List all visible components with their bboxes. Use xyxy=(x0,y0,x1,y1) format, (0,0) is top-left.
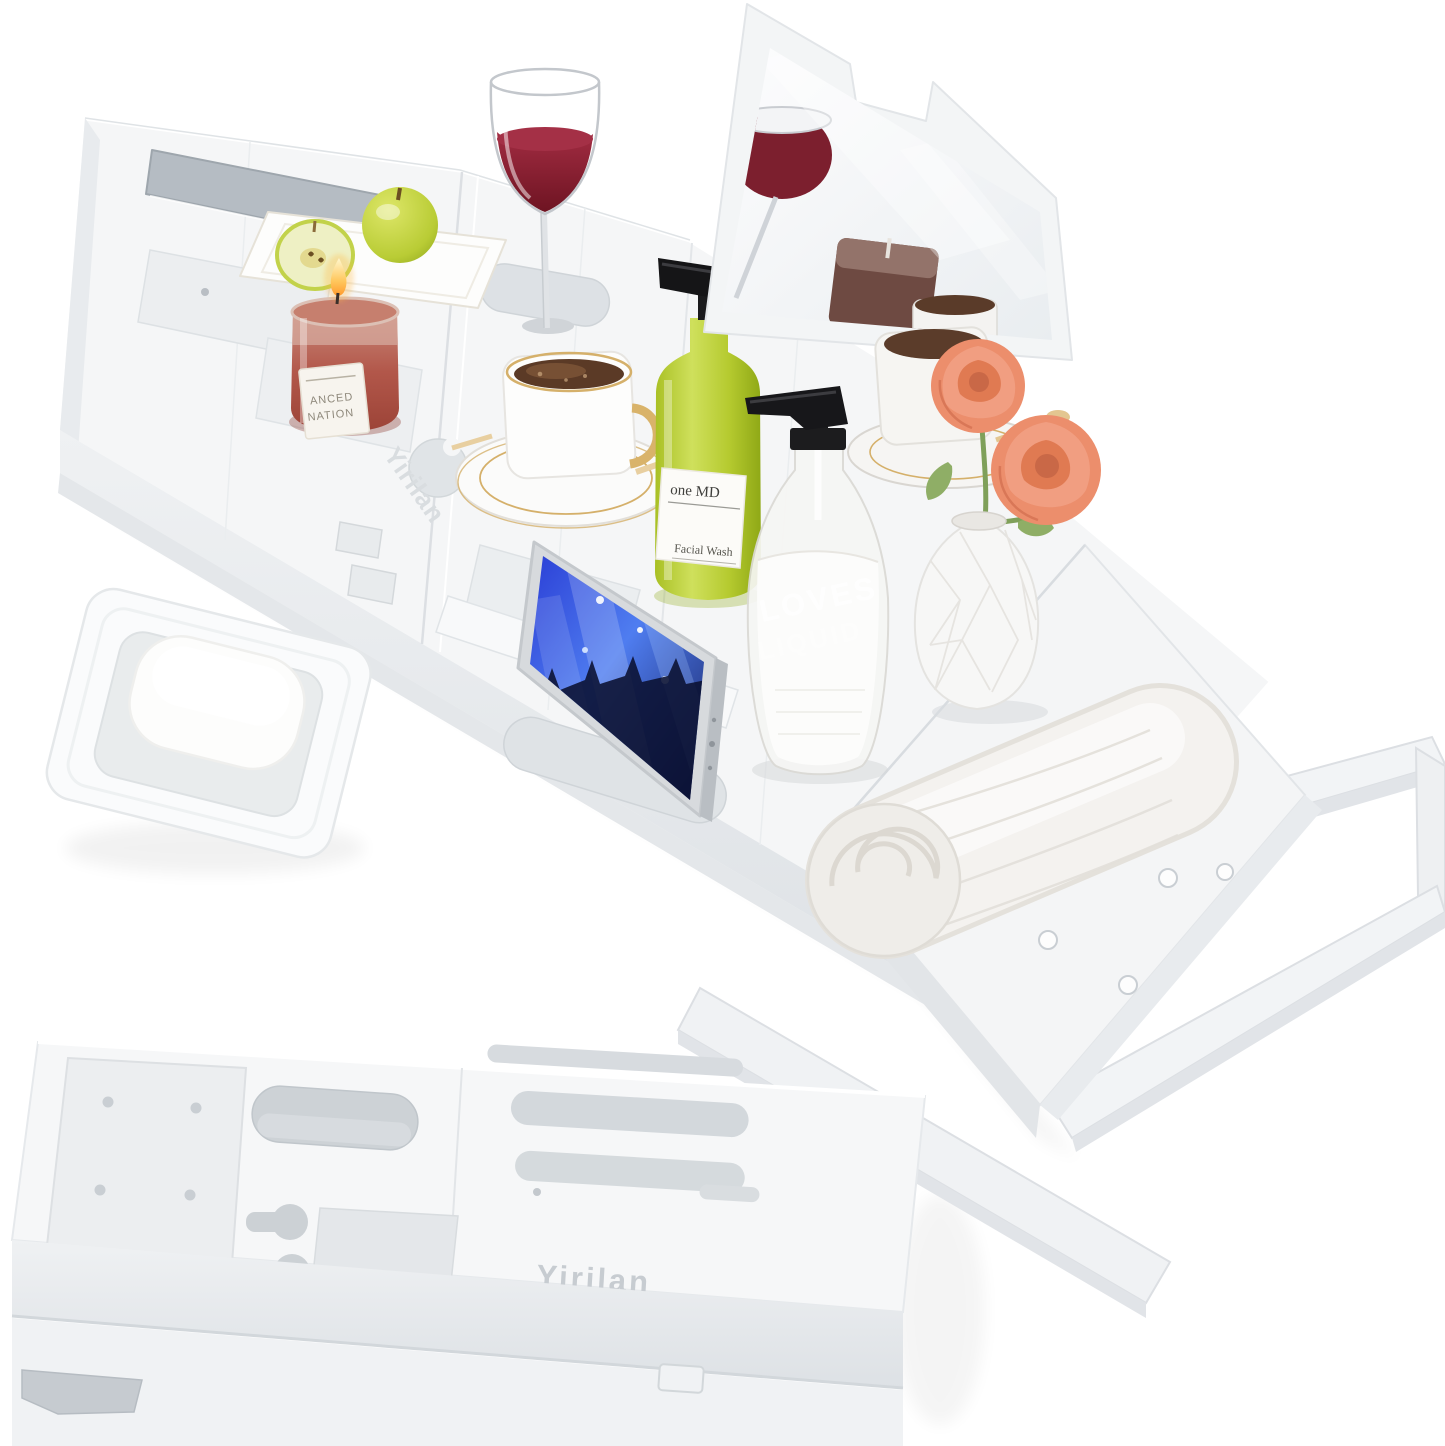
stage-light-1 xyxy=(596,596,604,604)
glass-stem xyxy=(544,212,547,328)
left-compartment-hole xyxy=(201,288,209,296)
wine-surface xyxy=(497,127,593,151)
mirror-stand xyxy=(704,4,1072,360)
candle-top-surface xyxy=(292,298,398,326)
stage-light-3 xyxy=(582,647,588,653)
phone-port xyxy=(709,741,715,747)
coffee-crema xyxy=(526,363,586,379)
folded-stadium-cutout xyxy=(250,1084,420,1151)
phone-speaker-hole-1 xyxy=(712,718,716,722)
stage-light-2 xyxy=(637,627,643,633)
folded-small-hole xyxy=(533,1188,541,1196)
phone-speaker-hole-2 xyxy=(708,766,712,770)
coffee-bubble-2 xyxy=(583,374,587,378)
coffee-bubble-3 xyxy=(564,378,568,382)
candle-label: ANCED NATION xyxy=(299,363,370,439)
bottle-label: one MD Facial Wash xyxy=(656,468,746,568)
folded-latch xyxy=(658,1364,704,1393)
frame-right-rail xyxy=(1416,748,1445,908)
candle-wick xyxy=(337,293,338,304)
scene-svg: Yirilan xyxy=(0,0,1445,1446)
coffee-bubble-1 xyxy=(538,372,543,377)
whole-apple xyxy=(362,187,438,263)
glass-rim xyxy=(491,69,599,95)
rose-1 xyxy=(931,339,1025,433)
vase-mouth xyxy=(952,512,1006,530)
folded-book-grooves xyxy=(487,1044,760,1203)
folded-tray: Yirilan xyxy=(12,1042,925,1446)
product-photo: Yirilan xyxy=(0,0,1445,1446)
rose-2 xyxy=(991,415,1101,525)
